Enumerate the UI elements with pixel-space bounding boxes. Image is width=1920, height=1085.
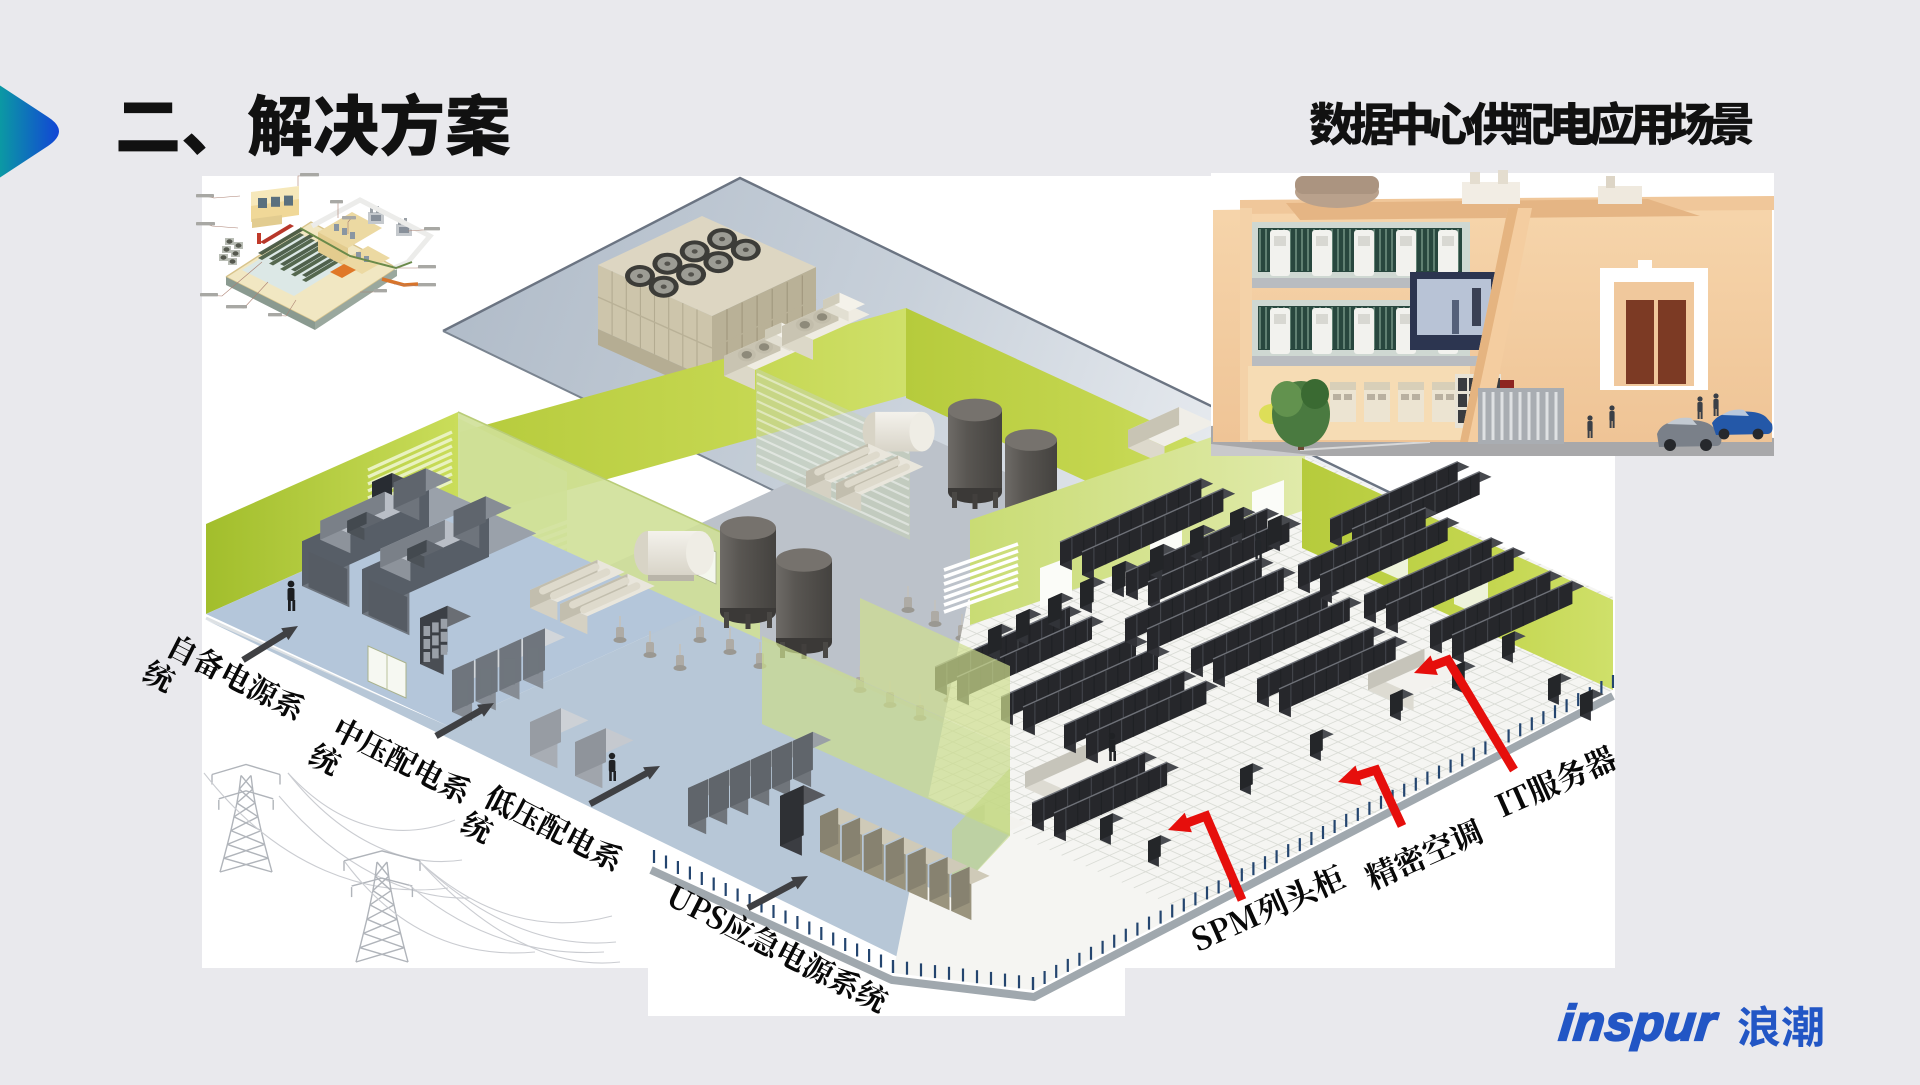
svg-text:inspur: inspur	[1557, 995, 1721, 1051]
